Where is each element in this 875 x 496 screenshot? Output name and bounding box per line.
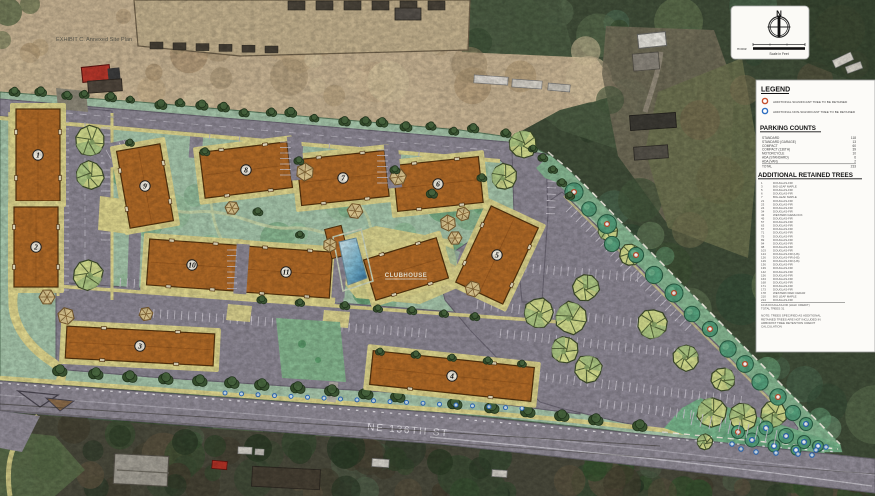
svg-text:2: 2 [854, 159, 856, 163]
svg-text:ADDITIONAL NON-SIGNIFICANT TRE: ADDITIONAL NON-SIGNIFICANT TREE TO BE RE… [773, 110, 856, 114]
svg-text:TOTAL: TOTAL [762, 164, 772, 168]
svg-text:CALCULATION: CALCULATION [761, 325, 782, 329]
svg-text:DOUGLAS-FIR: DOUGLAS-FIR [773, 298, 793, 302]
svg-text:ADDITIONAL RETAINED TREES: ADDITIONAL RETAINED TREES [758, 172, 853, 179]
svg-text:TOTAL TREES 31: TOTAL TREES 31 [761, 307, 785, 311]
svg-text:ADDITIONAL SIGNIFICANT TREE TO: ADDITIONAL SIGNIFICANT TREE TO BE RETAIN… [773, 100, 848, 104]
svg-text:ADA (VAN): ADA (VAN) [762, 159, 778, 163]
svg-text:EXHIBIT C. Annexed Site Plan: EXHIBIT C. Annexed Site Plan [56, 37, 132, 43]
svg-text:233: 233 [851, 164, 857, 168]
svg-text:Scale in Feet: Scale in Feet [769, 52, 788, 56]
svg-text:HORIZ: HORIZ [737, 47, 747, 51]
svg-text:LEGEND: LEGEND [761, 87, 790, 94]
svg-text:214: 214 [761, 298, 766, 302]
svg-text:PARKING COUNTS: PARKING COUNTS [760, 125, 816, 132]
